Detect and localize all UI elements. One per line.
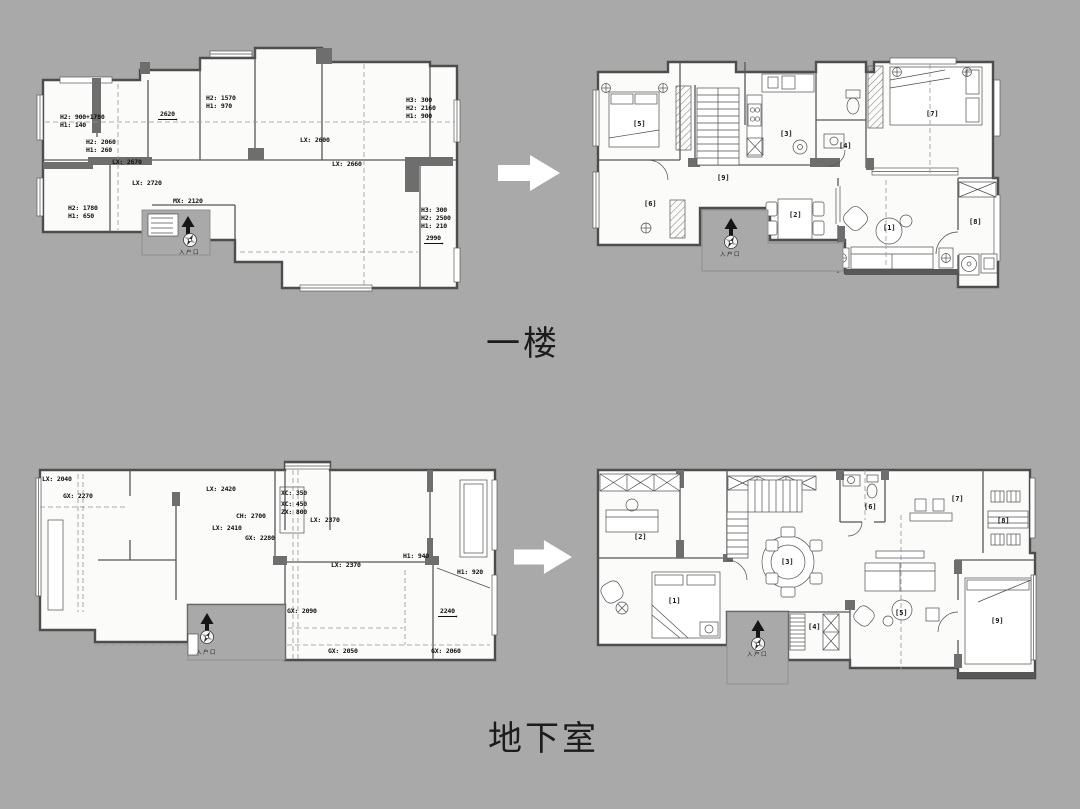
compass-icon (725, 236, 738, 249)
basement-measured-plan (33, 453, 498, 670)
bottom-wall (958, 672, 1035, 678)
transform-arrow-bottom (514, 538, 572, 576)
bed (965, 578, 1031, 664)
bed (652, 572, 720, 638)
wall-pier (188, 634, 198, 655)
closet-hatched (670, 200, 685, 238)
bed (602, 84, 668, 148)
closet-hatched (868, 66, 883, 128)
basement-furnished-plan (588, 458, 1043, 688)
balcony-cabinet (959, 182, 996, 197)
closet-hatched (676, 86, 691, 150)
bottom-wall (845, 269, 958, 275)
staircase (697, 88, 739, 165)
arrow-right-icon (514, 540, 572, 574)
first-floor-furnished-plan (588, 53, 1008, 293)
compass-icon (201, 631, 214, 644)
transform-arrow-top (498, 155, 560, 191)
compass-icon (184, 234, 197, 247)
bed (890, 67, 982, 125)
washing-machine (959, 254, 997, 275)
arrow-right-icon (498, 155, 560, 191)
first-floor-measured-plan (33, 42, 465, 294)
chair (641, 223, 651, 233)
stool (926, 608, 939, 621)
floorplan-canvas: 一楼 地下室 H2: 900+1780 H1: 140H2: 2060 H1: … (0, 0, 1080, 809)
compass-icon (752, 638, 765, 651)
note-block (148, 214, 178, 236)
caption-first-floor: 一楼 (486, 327, 560, 361)
caption-basement: 地下室 (488, 722, 599, 756)
